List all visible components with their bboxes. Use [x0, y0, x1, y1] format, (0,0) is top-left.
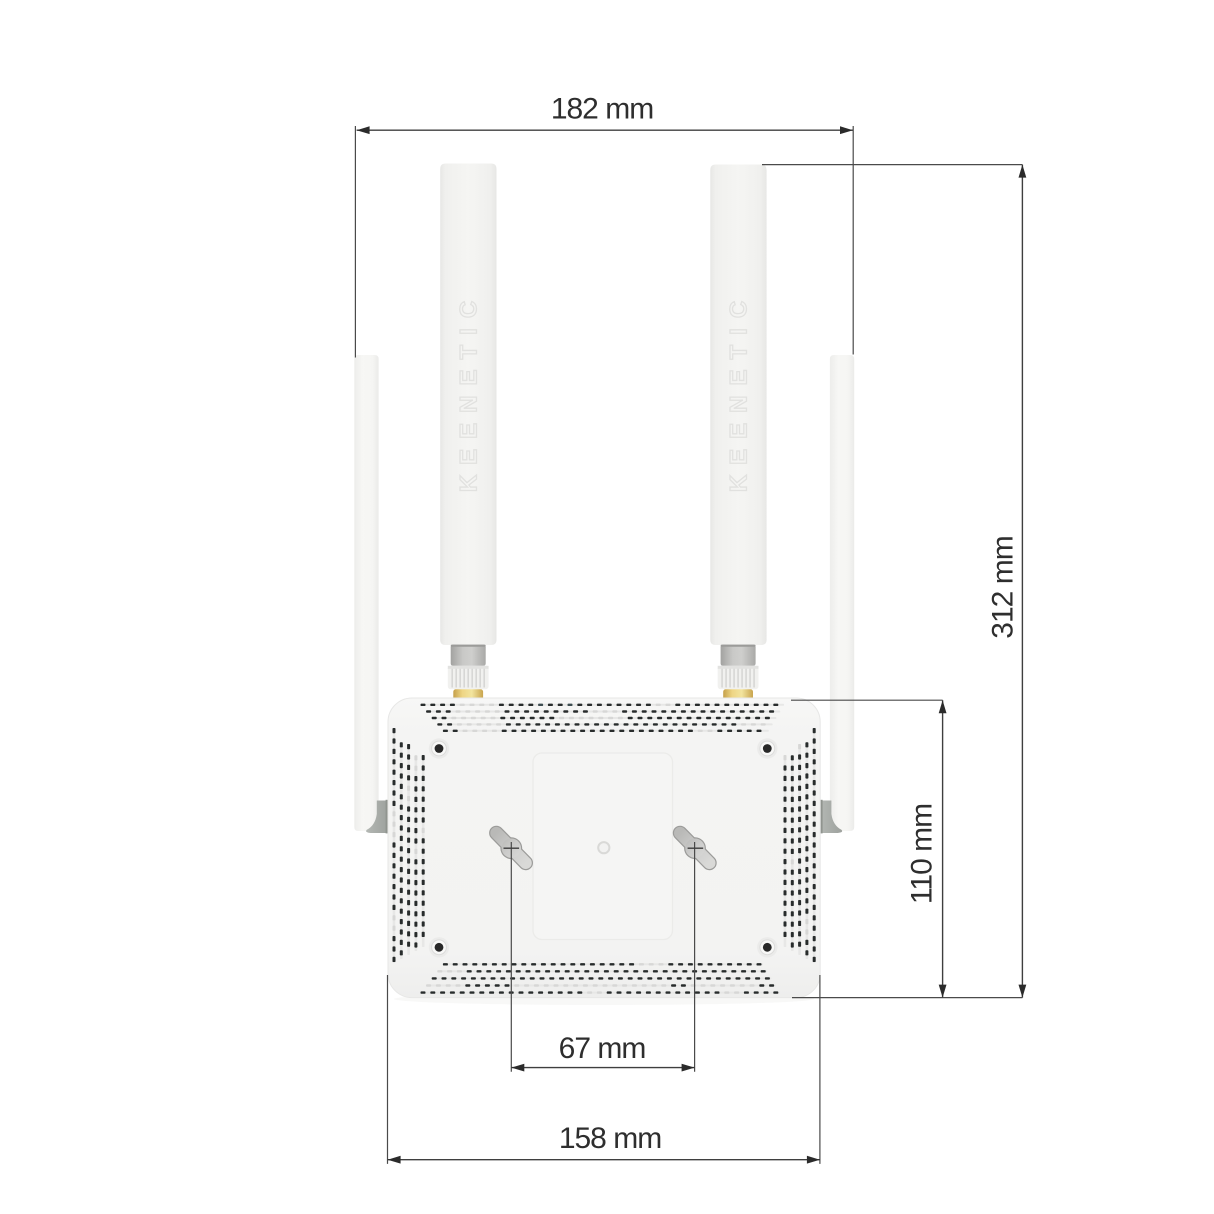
svg-text:KEENETIC: KEENETIC — [456, 291, 483, 492]
svg-text:158 mm: 158 mm — [559, 1122, 661, 1155]
svg-text:312 mm: 312 mm — [987, 536, 1020, 638]
svg-text:110 mm: 110 mm — [906, 804, 939, 904]
svg-text:KEENETIC: KEENETIC — [725, 291, 752, 492]
svg-text:182 mm: 182 mm — [551, 93, 653, 126]
svg-text:67 mm: 67 mm — [559, 1032, 646, 1065]
